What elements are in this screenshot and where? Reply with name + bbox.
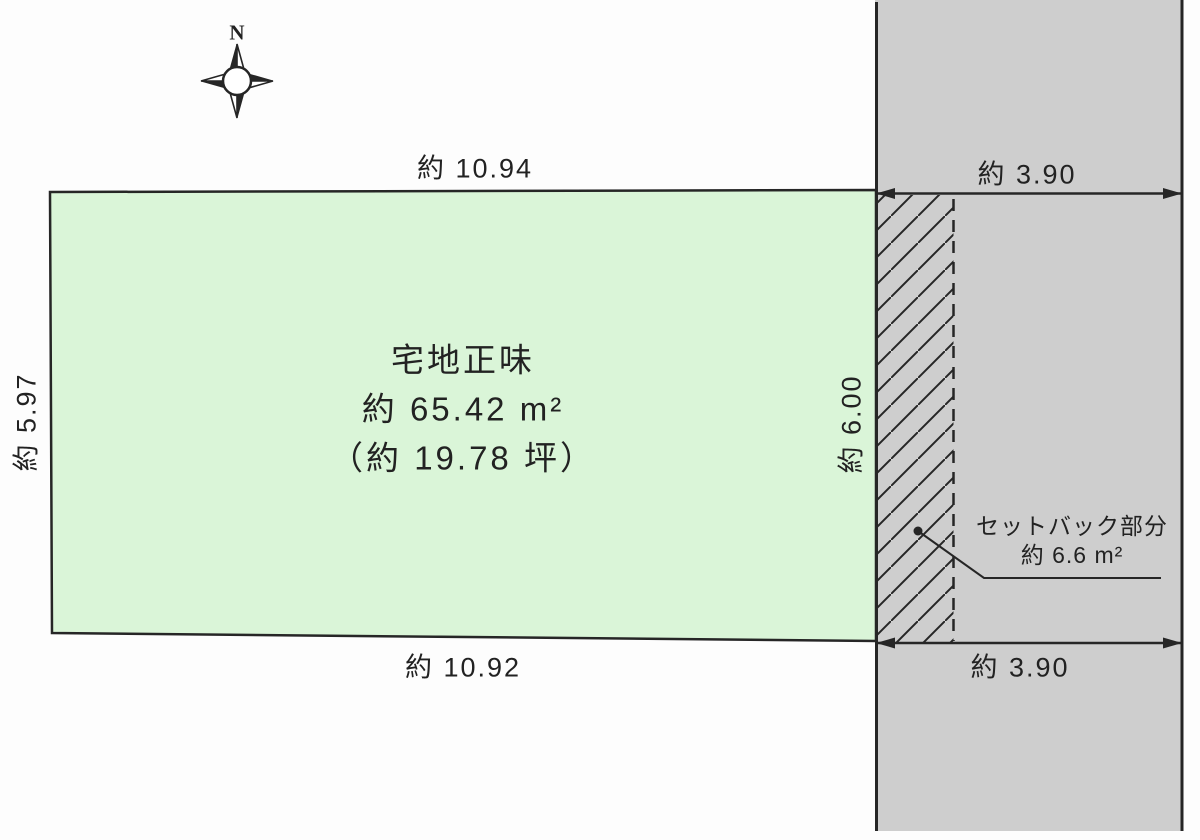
dimension-top: 約 10.94 xyxy=(417,147,533,186)
land-survey-diagram: N 約 10.94 約 10.92 約 5.97 約 6.00 約 3.90 約… xyxy=(0,0,1200,840)
setback-callout-line1: セットバック部分 xyxy=(976,512,1168,541)
plot-area-label: 宅地正味 約 65.42 m² （約 19.78 坪） xyxy=(330,336,596,483)
dimension-bottom: 約 10.92 xyxy=(405,646,521,685)
diagram-drawing xyxy=(0,0,1200,840)
dimension-road-width-bottom: 約 3.90 xyxy=(970,646,1069,685)
dimension-left: 約 5.97 xyxy=(5,372,44,471)
plot-area-tsubo: （約 19.78 坪） xyxy=(330,434,596,483)
setback-callout: セットバック部分 約 6.6 m² xyxy=(976,512,1168,570)
compass-icon xyxy=(201,44,273,118)
plot-area-m2: 約 65.42 m² xyxy=(330,385,596,434)
plot-name: 宅地正味 xyxy=(330,336,596,385)
north-label: N xyxy=(229,21,244,46)
dimension-right-inner: 約 6.00 xyxy=(830,374,869,473)
setback-hatch xyxy=(876,195,954,642)
setback-callout-line2: 約 6.6 m² xyxy=(976,541,1168,570)
dimension-road-width-top: 約 3.90 xyxy=(977,153,1076,192)
